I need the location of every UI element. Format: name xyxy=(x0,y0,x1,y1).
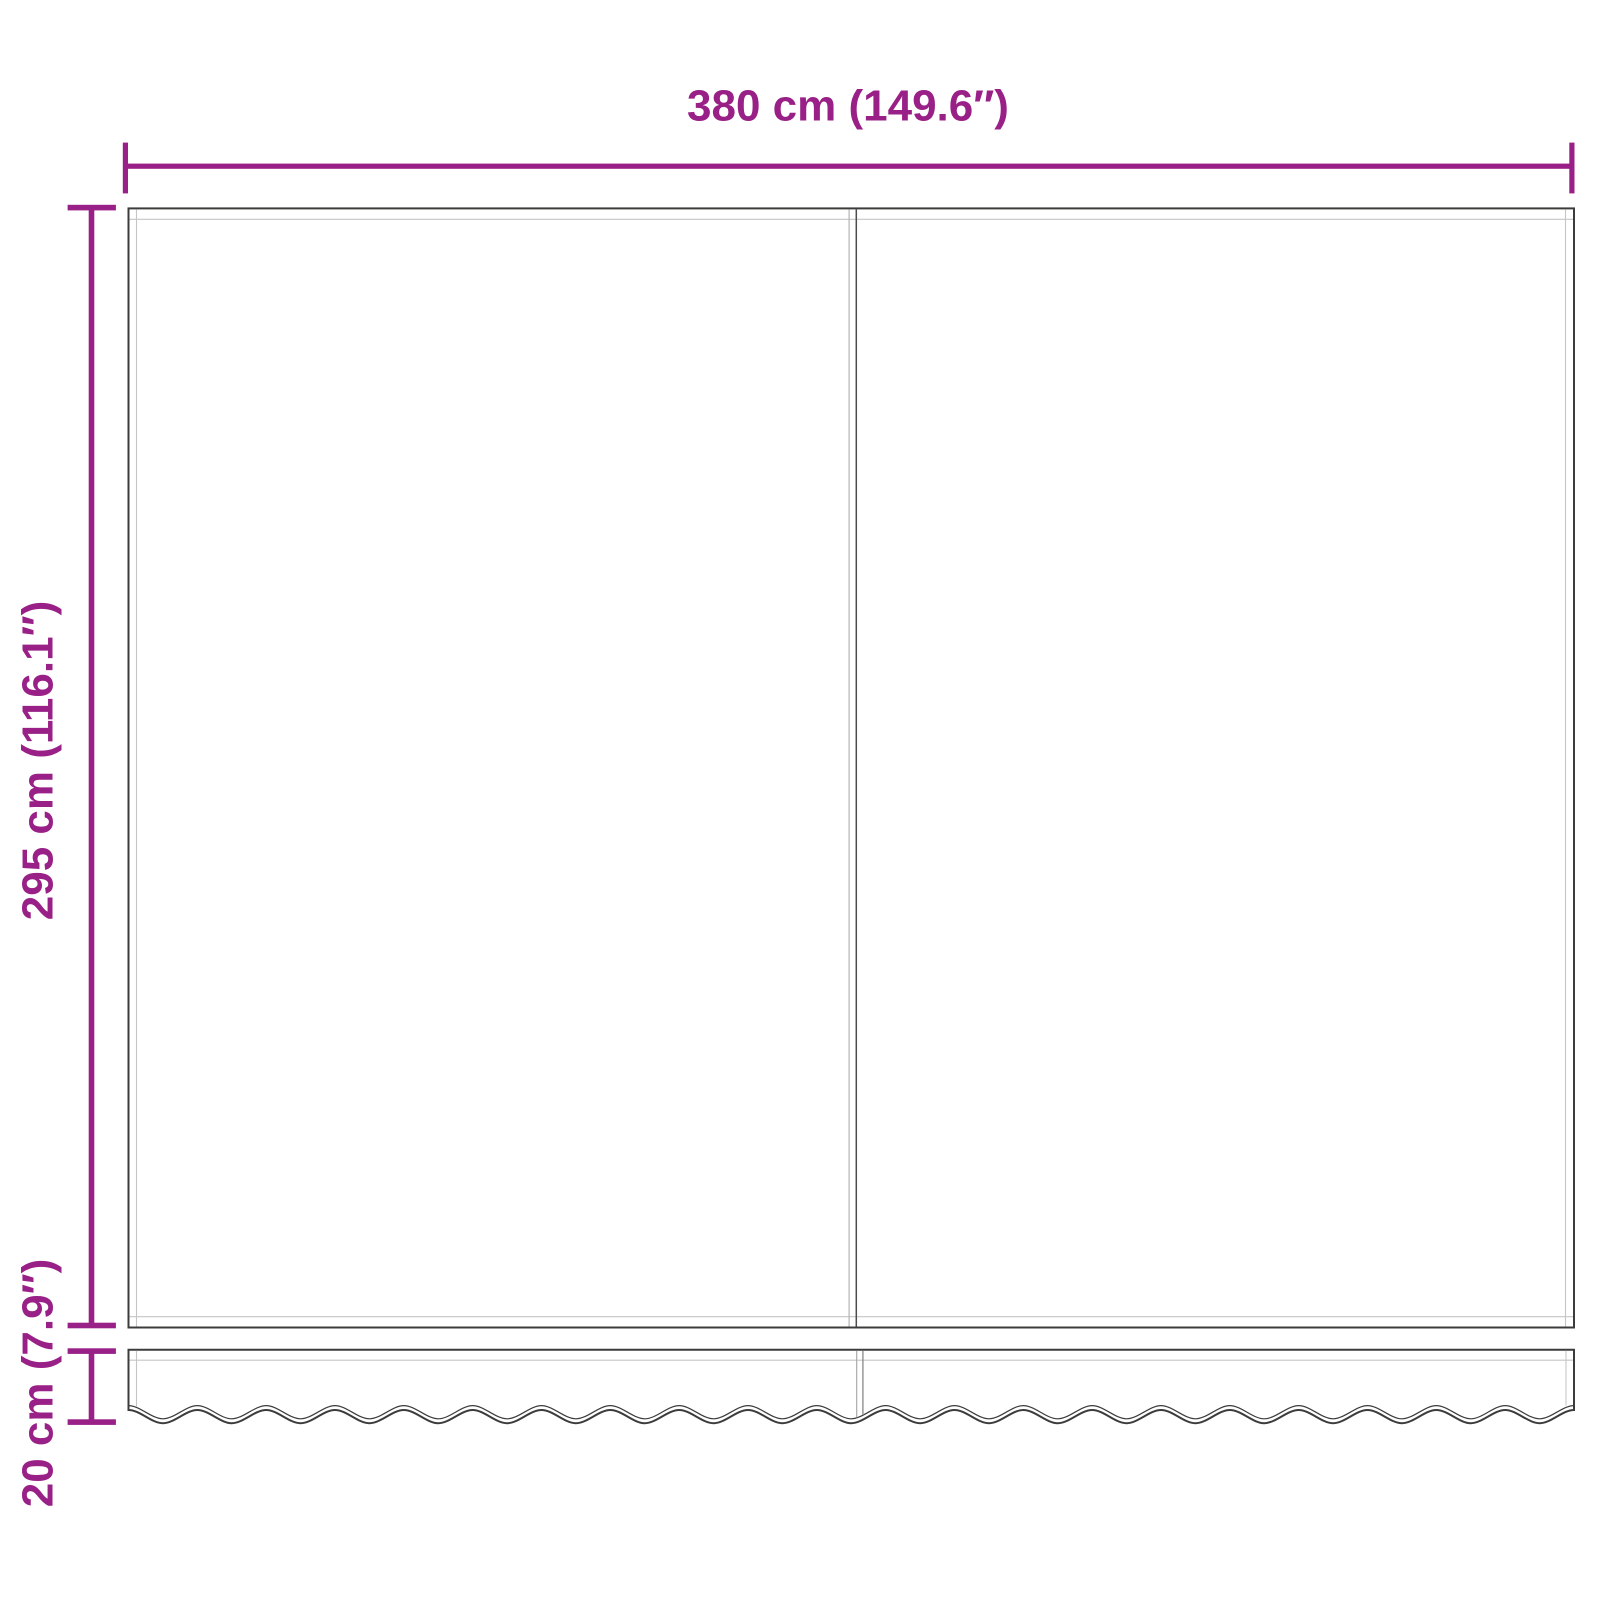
svg-text:20 cm (7.9″): 20 cm (7.9″) xyxy=(14,1259,63,1508)
svg-text:380 cm (149.6″): 380 cm (149.6″) xyxy=(687,82,1009,131)
svg-text:295 cm (116.1″): 295 cm (116.1″) xyxy=(14,601,63,921)
